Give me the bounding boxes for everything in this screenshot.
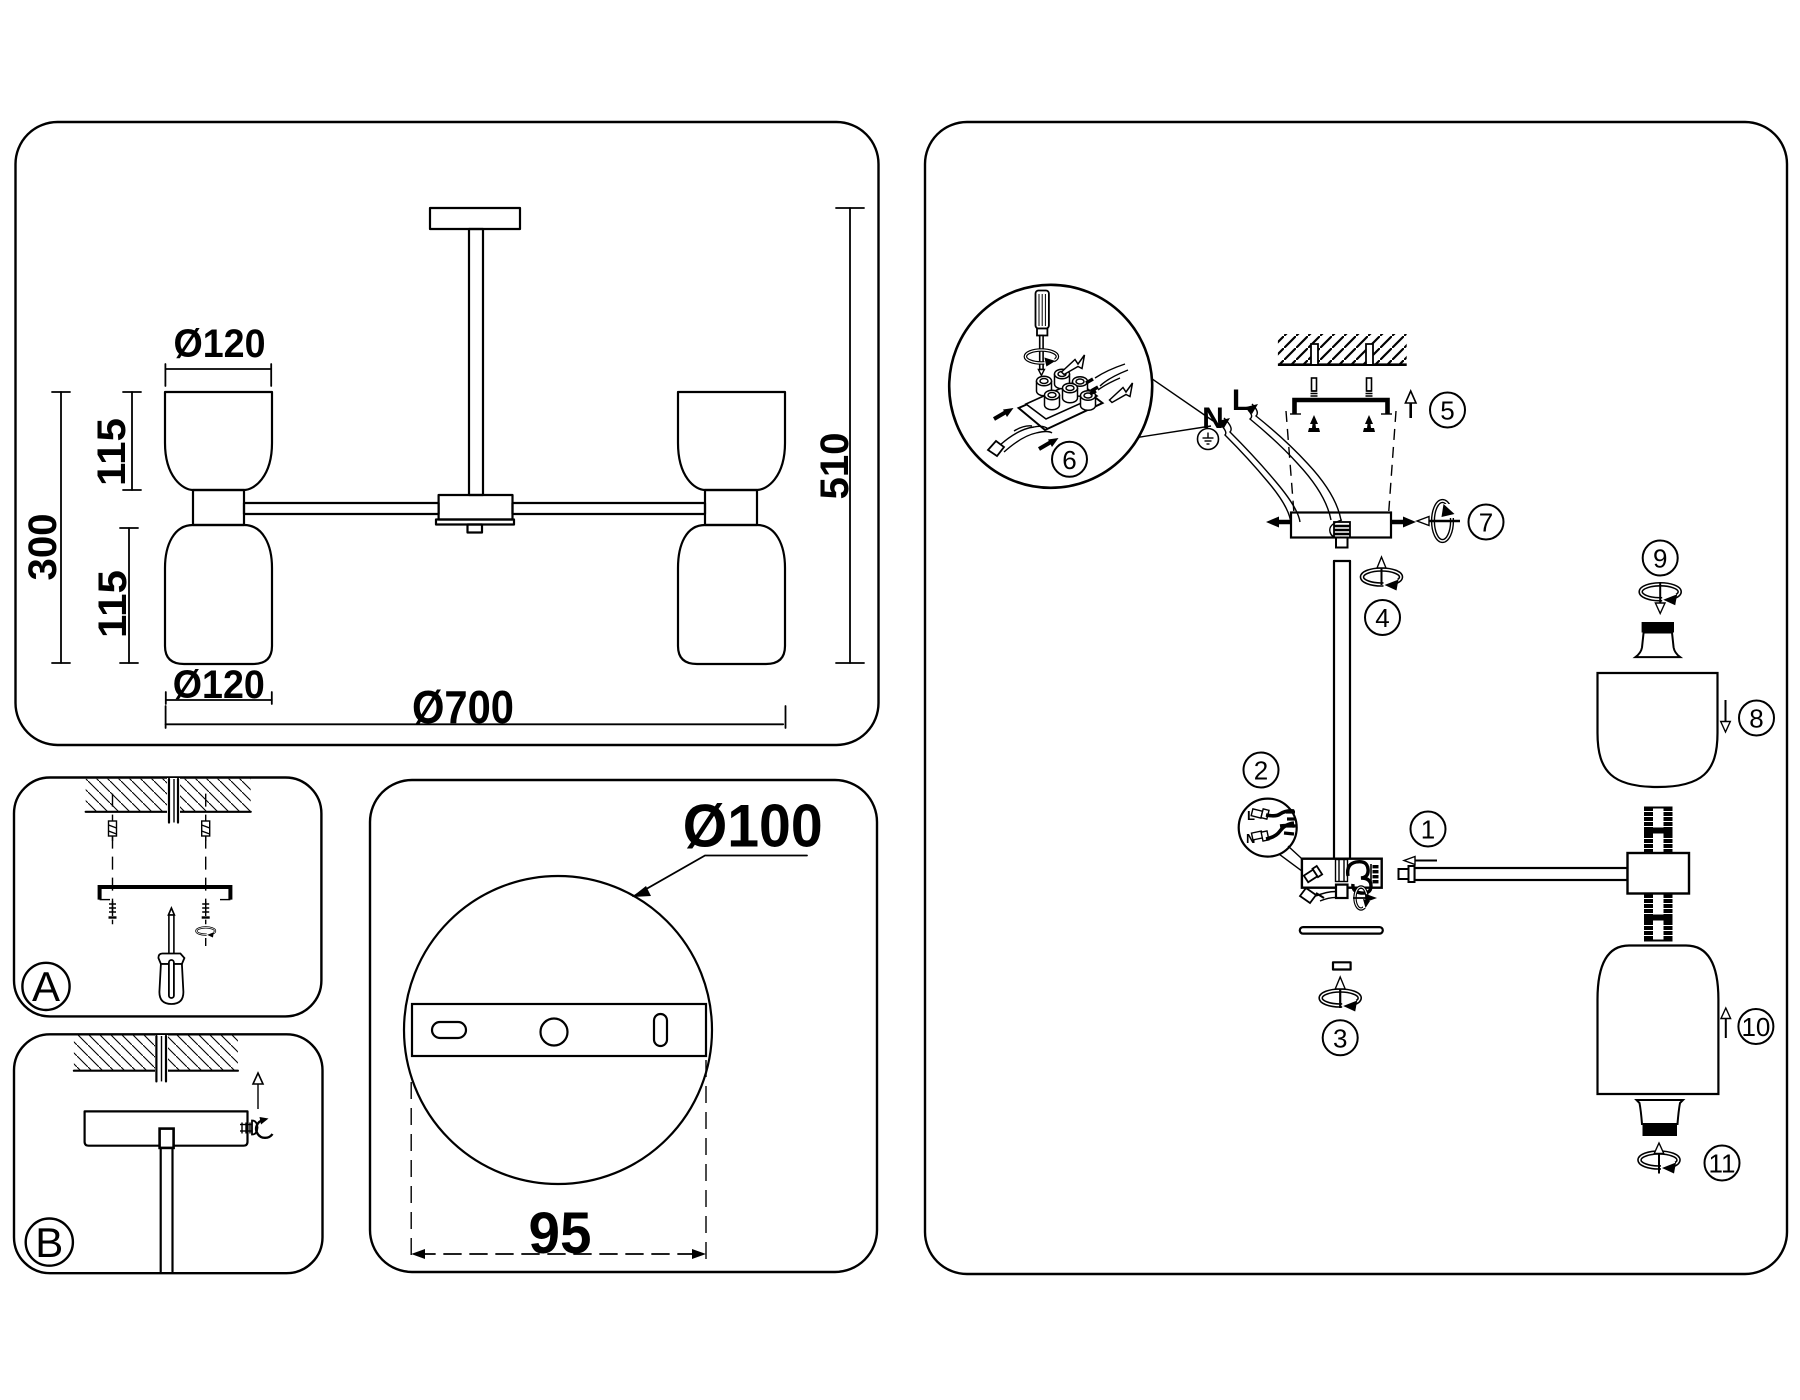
svg-text:Ø700: Ø700 xyxy=(412,681,514,733)
svg-text:5: 5 xyxy=(1440,396,1454,426)
svg-text:4: 4 xyxy=(1375,603,1389,633)
svg-text:3: 3 xyxy=(1333,1023,1347,1053)
svg-text:Ø120: Ø120 xyxy=(174,322,266,366)
svg-text:A: A xyxy=(32,963,60,1010)
svg-text:2: 2 xyxy=(1254,756,1268,786)
svg-text:8: 8 xyxy=(1749,704,1763,734)
svg-text:115: 115 xyxy=(91,570,135,638)
svg-text:11: 11 xyxy=(1709,1149,1736,1179)
svg-text:300: 300 xyxy=(21,514,65,581)
svg-text:1: 1 xyxy=(1421,815,1435,845)
svg-text:510: 510 xyxy=(813,433,857,500)
svg-text:6: 6 xyxy=(1062,445,1076,475)
svg-text:7: 7 xyxy=(1479,508,1493,538)
svg-text:B: B xyxy=(35,1219,63,1266)
svg-text:L: L xyxy=(1232,384,1250,417)
svg-text:95: 95 xyxy=(529,1201,592,1266)
svg-text:Ø100: Ø100 xyxy=(683,793,823,860)
svg-text:115: 115 xyxy=(90,418,134,486)
svg-text:9: 9 xyxy=(1653,544,1667,574)
svg-text:10: 10 xyxy=(1741,1012,1770,1042)
